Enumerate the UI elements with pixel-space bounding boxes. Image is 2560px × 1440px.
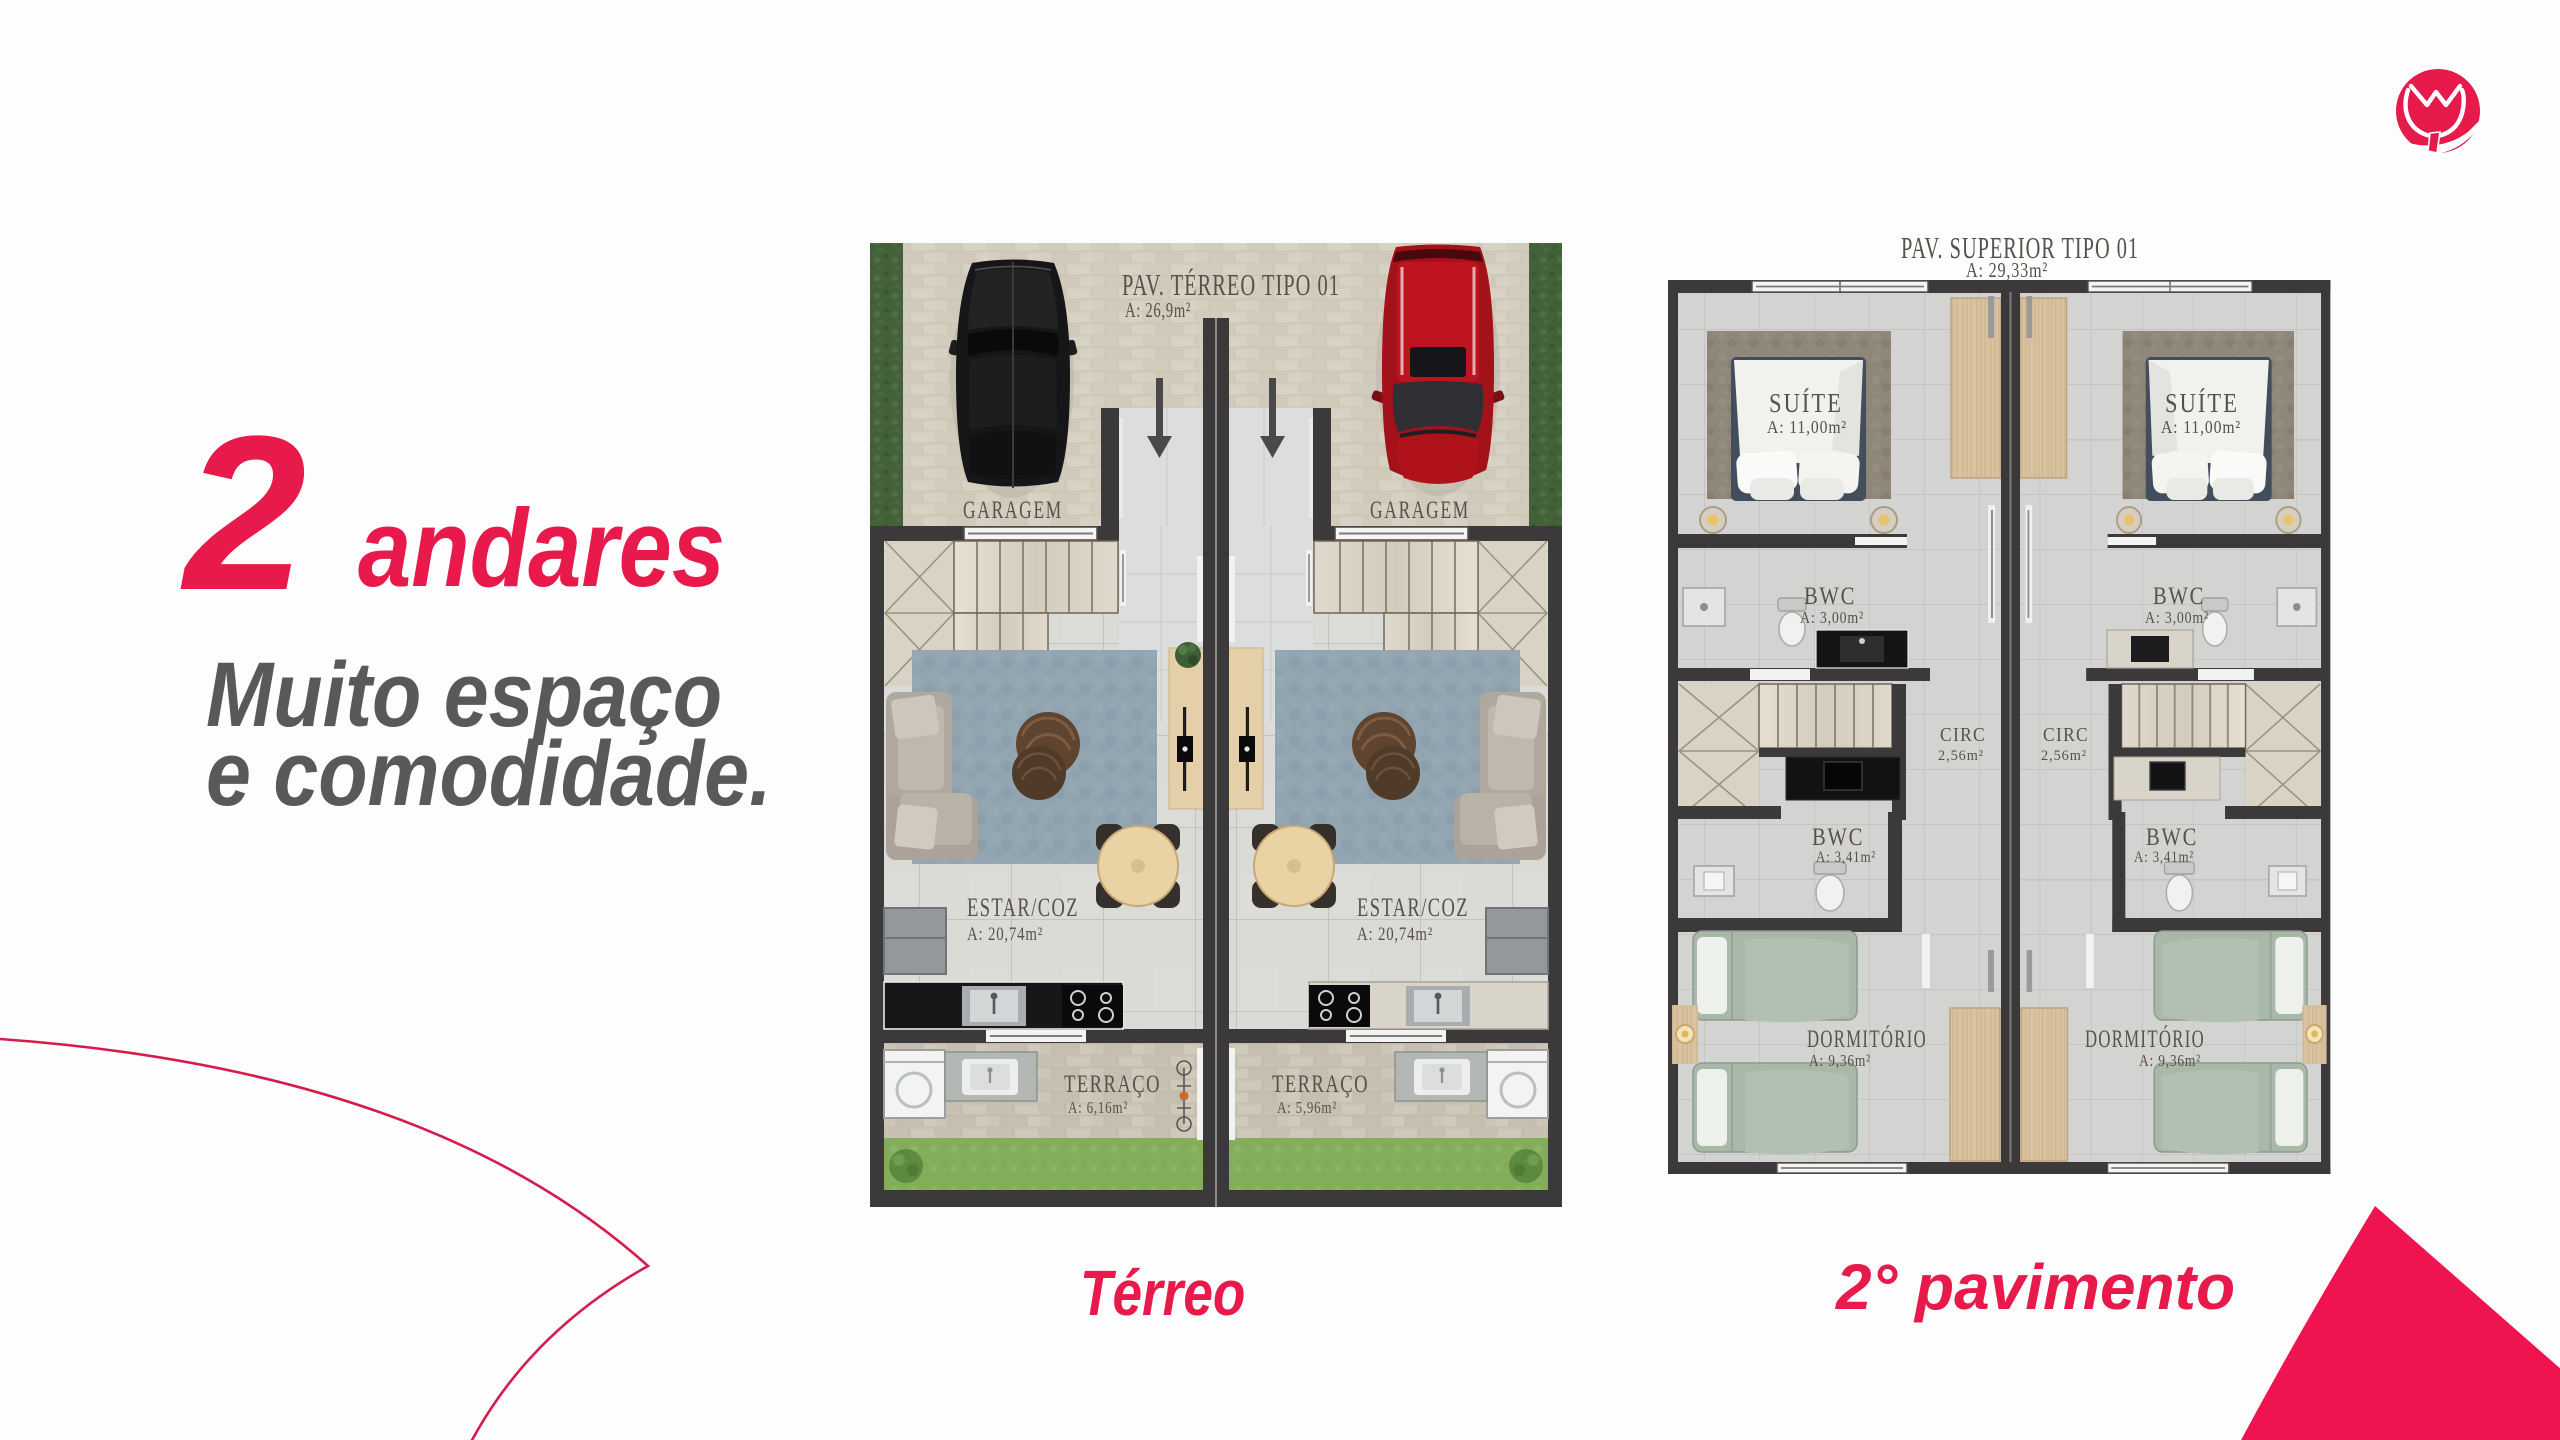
svg-text:A: 6,16m²: A: 6,16m² bbox=[1068, 1098, 1128, 1117]
svg-text:SUÍTE: SUÍTE bbox=[1769, 388, 1843, 418]
svg-text:A: 3,00m²: A: 3,00m² bbox=[2145, 608, 2209, 627]
svg-text:GARAGEM: GARAGEM bbox=[963, 497, 1063, 524]
svg-text:BWC: BWC bbox=[2153, 583, 2205, 610]
svg-text:A: 29,33m²: A: 29,33m² bbox=[1966, 258, 2048, 282]
svg-text:TERRAÇO: TERRAÇO bbox=[1064, 1071, 1161, 1098]
svg-text:DORMITÓRIO: DORMITÓRIO bbox=[2085, 1025, 2205, 1053]
svg-text:ESTAR/COZ: ESTAR/COZ bbox=[1357, 893, 1469, 922]
svg-text:BWC: BWC bbox=[2146, 824, 2198, 851]
svg-text:A: 5,96m²: A: 5,96m² bbox=[1277, 1098, 1337, 1117]
svg-text:2,56m²: 2,56m² bbox=[2041, 748, 2087, 764]
svg-text:SUÍTE: SUÍTE bbox=[2165, 388, 2239, 418]
svg-text:A: 9,36m²: A: 9,36m² bbox=[2139, 1051, 2201, 1070]
svg-text:A: 3,41m²: A: 3,41m² bbox=[1816, 849, 1876, 866]
svg-text:A: 20,74m²: A: 20,74m² bbox=[967, 924, 1043, 945]
svg-text:DORMITÓRIO: DORMITÓRIO bbox=[1807, 1025, 1927, 1053]
svg-text:2,56m²: 2,56m² bbox=[1938, 748, 1984, 764]
svg-text:BWC: BWC bbox=[1804, 583, 1856, 610]
svg-text:A: 3,00m²: A: 3,00m² bbox=[1800, 608, 1864, 627]
svg-text:ESTAR/COZ: ESTAR/COZ bbox=[967, 893, 1079, 922]
svg-text:A: 11,00m²: A: 11,00m² bbox=[2161, 417, 2241, 437]
svg-text:TERRAÇO: TERRAÇO bbox=[1272, 1071, 1369, 1098]
svg-text:CIRC: CIRC bbox=[1940, 724, 1986, 746]
svg-text:BWC: BWC bbox=[1812, 824, 1864, 851]
svg-text:A: 11,00m²: A: 11,00m² bbox=[1767, 417, 1847, 437]
svg-text:A: 20,74m²: A: 20,74m² bbox=[1357, 924, 1433, 945]
svg-text:A: 26,9m²: A: 26,9m² bbox=[1125, 298, 1191, 322]
svg-text:GARAGEM: GARAGEM bbox=[1370, 497, 1470, 524]
svg-text:PAV. TÉRREO TIPO 01: PAV. TÉRREO TIPO 01 bbox=[1122, 267, 1340, 302]
svg-text:A: 9,36m²: A: 9,36m² bbox=[1809, 1051, 1871, 1070]
svg-text:A: 3,41m²: A: 3,41m² bbox=[2134, 849, 2194, 866]
svg-text:CIRC: CIRC bbox=[2043, 724, 2089, 746]
